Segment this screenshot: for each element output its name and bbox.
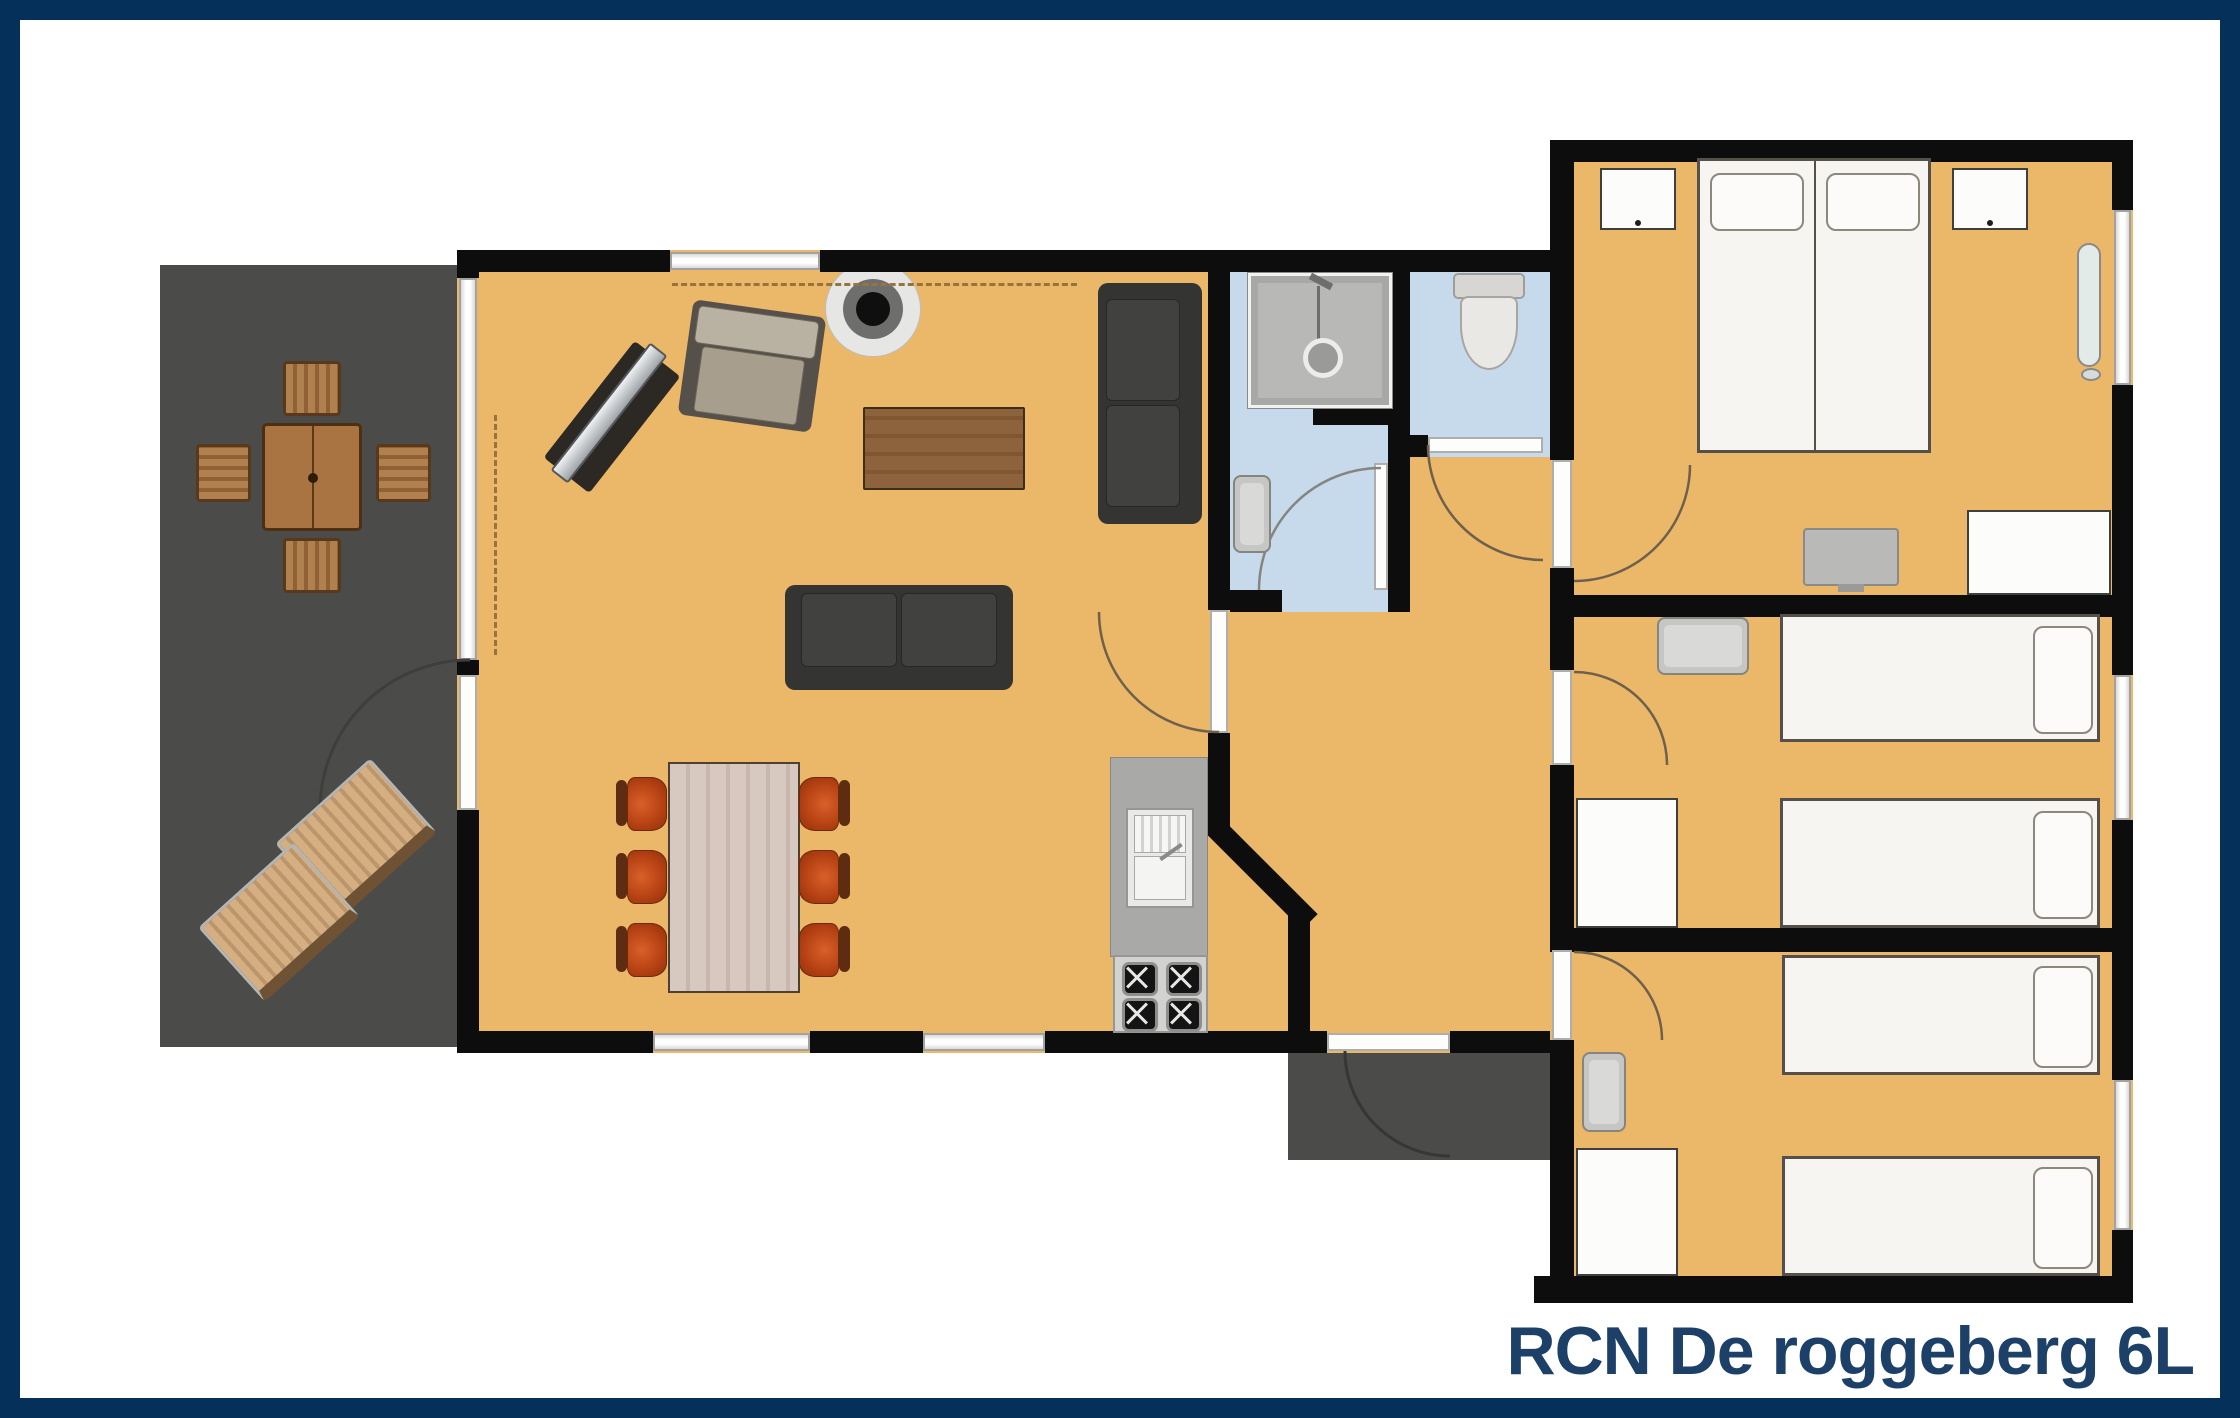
- pillow: [1710, 173, 1804, 231]
- coffee-table: [863, 407, 1025, 490]
- chair-seat: [799, 850, 839, 904]
- chair-back: [839, 926, 850, 972]
- chair-back: [616, 926, 627, 972]
- burner-icon: [1166, 962, 1202, 996]
- cooktop: [1113, 955, 1208, 1033]
- wall-sofa: [1098, 283, 1202, 524]
- two-seat-sofa: [785, 585, 1013, 690]
- bedroom-tv: [1803, 528, 1899, 586]
- nightstand-right: [1952, 168, 2028, 230]
- armchair-seat: [693, 346, 805, 426]
- sink-basin: [1134, 856, 1186, 900]
- plan-title: RCN De roggeberg 6L: [1506, 1312, 2194, 1390]
- chair-seat: [627, 777, 667, 831]
- garden-table: [262, 423, 362, 531]
- chair-seat: [799, 777, 839, 831]
- bedroom3-bed-2: [1782, 1156, 2100, 1276]
- burner-icon: [1166, 998, 1202, 1032]
- dining-chair-4: [798, 775, 850, 831]
- chair-back: [839, 853, 850, 899]
- dining-chair-2: [616, 848, 668, 904]
- bedroom3-basin: [1582, 1052, 1626, 1132]
- bedroom3-bed-1: [1782, 955, 2100, 1075]
- dining-chair-3: [616, 921, 668, 977]
- garden-chair-right: [376, 444, 431, 502]
- garden-chair-top: [283, 361, 341, 416]
- shower-head-icon: [1303, 338, 1343, 378]
- burner-icon: [1122, 962, 1158, 996]
- dining-chair-1: [616, 775, 668, 831]
- bedroom3-wardrobe: [1576, 1148, 1678, 1276]
- nightstand-left: [1600, 168, 1676, 230]
- kitchen-sink: [1126, 808, 1194, 908]
- sofa-cushion: [1106, 299, 1180, 401]
- shower-hose: [1317, 286, 1320, 344]
- dining-chair-6: [798, 921, 850, 977]
- sofa-cushion: [901, 593, 997, 667]
- chair-back: [616, 780, 627, 826]
- shower: [1248, 273, 1392, 408]
- garden-chair-bottom: [283, 538, 341, 593]
- dining-chair-5: [798, 848, 850, 904]
- burner-icon: [1122, 998, 1158, 1032]
- pillow: [1826, 173, 1920, 231]
- sofa-cushion: [1106, 405, 1180, 507]
- bedroom2-wardrobe: [1576, 798, 1678, 928]
- chair-seat: [627, 923, 667, 977]
- floorplan-canvas: RCN De roggeberg 6L: [0, 0, 2240, 1418]
- bedroom2-basin: [1657, 617, 1749, 675]
- pillow: [2033, 626, 2093, 734]
- bathroom-basin: [1233, 475, 1271, 553]
- chair-seat: [799, 923, 839, 977]
- sofa-cushion: [801, 593, 897, 667]
- pillow: [2033, 811, 2093, 919]
- radiator: [2077, 243, 2101, 367]
- chair-back: [616, 853, 627, 899]
- double-bed: [1697, 158, 1931, 453]
- pillow: [2033, 1167, 2093, 1269]
- bedroom2-bed-1: [1780, 614, 2100, 742]
- chair-seat: [627, 850, 667, 904]
- chair-back: [839, 780, 850, 826]
- garden-chair-left: [196, 444, 251, 502]
- bed-divider: [1814, 161, 1816, 450]
- dining-table: [668, 762, 800, 993]
- armchair: [678, 299, 827, 433]
- dresser: [1967, 510, 2111, 595]
- pillow: [2033, 966, 2093, 1068]
- bedroom2-bed-2: [1780, 798, 2100, 928]
